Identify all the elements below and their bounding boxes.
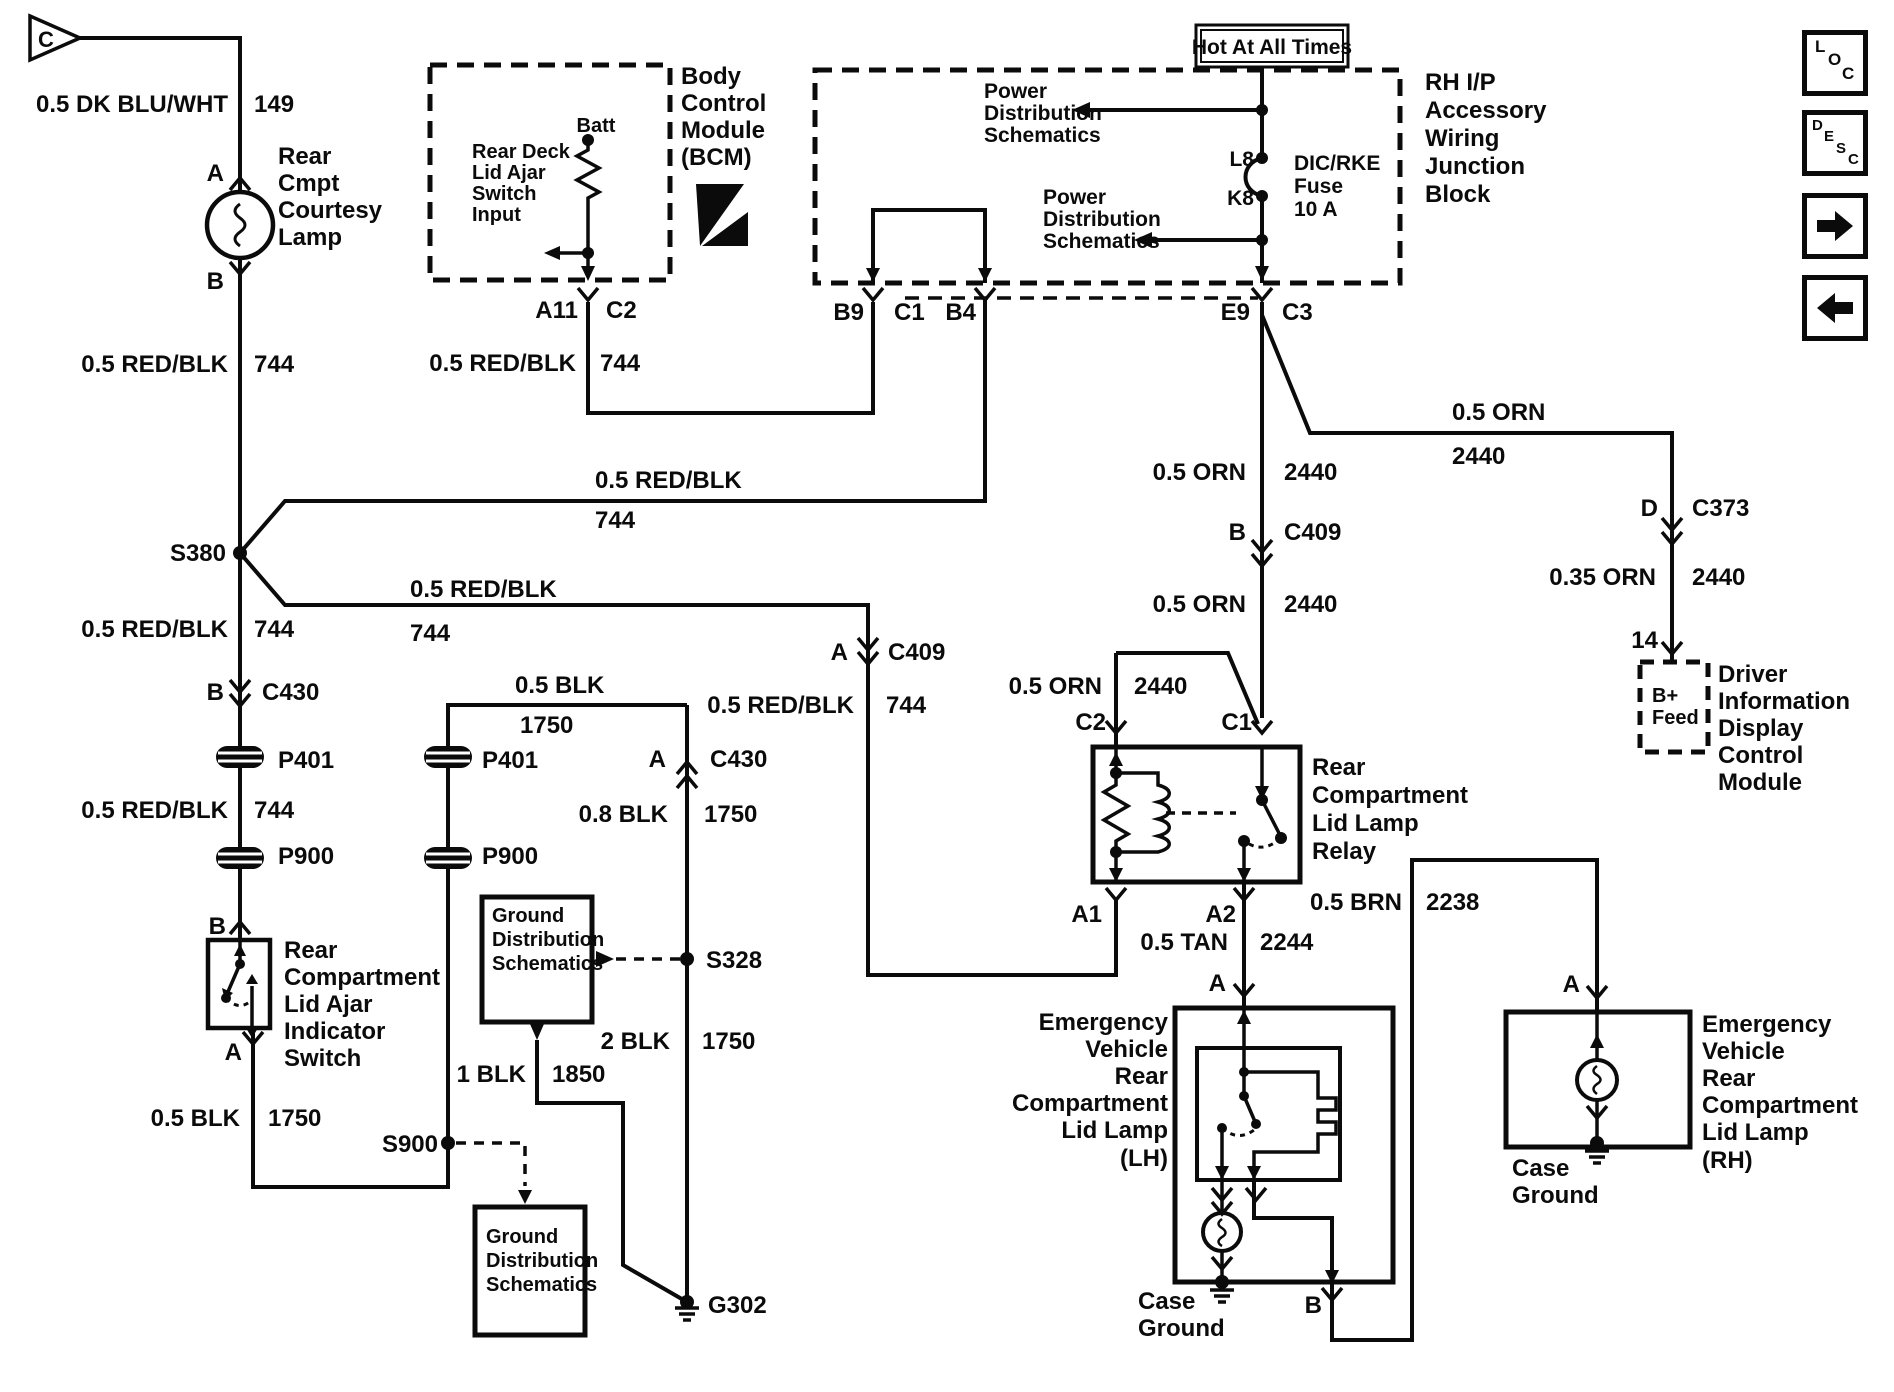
ground-label: Case bbox=[1512, 1155, 1569, 1182]
component-label: Wiring bbox=[1425, 125, 1499, 152]
pin-label: L8 bbox=[1229, 148, 1254, 171]
reference-label: Ground bbox=[492, 905, 564, 927]
component-label: Compartment bbox=[1312, 782, 1468, 809]
component-label: Compartment bbox=[284, 964, 440, 991]
connector-label: C409 bbox=[888, 639, 945, 666]
component-label: Lid Ajar bbox=[472, 162, 546, 184]
component-label: Emergency bbox=[1702, 1011, 1832, 1038]
wire-label: 1750 bbox=[520, 712, 573, 739]
component-label: Compartment bbox=[1012, 1090, 1168, 1117]
button-letter: D bbox=[1812, 117, 1823, 134]
connector-label: C3 bbox=[1282, 299, 1313, 326]
pin-label: K8 bbox=[1227, 187, 1254, 210]
wire-label: 0.5 BRN bbox=[1310, 889, 1402, 916]
wire-label: 0.5 ORN bbox=[1153, 459, 1246, 486]
wire-label: 1 BLK bbox=[457, 1061, 527, 1088]
reference-label: Distribution bbox=[486, 1250, 598, 1272]
component-label: Lamp bbox=[278, 224, 342, 251]
wire-label: 0.5 RED/BLK bbox=[81, 351, 228, 378]
component-label: Rear bbox=[284, 937, 337, 964]
reference-label: Schematics bbox=[492, 953, 603, 975]
pin-label: B bbox=[1305, 1292, 1322, 1319]
wire-label: 0.5 ORN bbox=[1009, 673, 1102, 700]
ground-label: G302 bbox=[708, 1292, 767, 1319]
wire-label: 1750 bbox=[268, 1105, 321, 1132]
reference-label: Ground bbox=[486, 1226, 558, 1248]
wire-label: 0.5 RED/BLK bbox=[81, 797, 228, 824]
wire-label: 2440 bbox=[1284, 591, 1337, 618]
component-label: (BCM) bbox=[681, 144, 752, 171]
splice-s380 bbox=[233, 546, 247, 560]
connector-label: C1 bbox=[894, 299, 925, 326]
wire-label: 2244 bbox=[1260, 929, 1314, 956]
component-label: RH I/P bbox=[1425, 69, 1496, 96]
component-label: Control bbox=[681, 90, 766, 117]
component-label: Compartment bbox=[1702, 1092, 1858, 1119]
component-label: Module bbox=[1718, 769, 1802, 796]
wire-label: 0.5 BLK bbox=[515, 672, 605, 699]
connector-label: C409 bbox=[1284, 519, 1341, 546]
component-label: Input bbox=[472, 204, 521, 226]
component-label: Cmpt bbox=[278, 170, 339, 197]
pin-label: C2 bbox=[1075, 709, 1106, 736]
component-label: Junction bbox=[1425, 153, 1525, 180]
wire-label: 0.5 ORN bbox=[1153, 591, 1246, 618]
connector-label: C430 bbox=[710, 746, 767, 773]
pin-label: E9 bbox=[1221, 299, 1250, 326]
component-label: Display bbox=[1718, 715, 1804, 742]
connector-label: C430 bbox=[262, 679, 319, 706]
component-label: Courtesy bbox=[278, 197, 383, 224]
wire-label: 744 bbox=[410, 620, 451, 647]
button-letter: E bbox=[1824, 128, 1834, 145]
fuse-label: Fuse bbox=[1294, 175, 1343, 198]
component-label: Module bbox=[681, 117, 765, 144]
pin-label: C1 bbox=[1221, 709, 1252, 736]
wire-label: 2440 bbox=[1452, 443, 1505, 470]
pin-label: A bbox=[831, 639, 848, 666]
wiring-diagram-canvas: C0.5 DK BLU/WHT149ARearCmptCourtesyLampB… bbox=[0, 0, 1894, 1392]
pin-label: B4 bbox=[945, 299, 976, 326]
component-label: Emergency bbox=[1039, 1009, 1169, 1036]
component-label: Lid Lamp bbox=[1061, 1117, 1168, 1144]
component-label: Control bbox=[1718, 742, 1803, 769]
reference-label: Schematics bbox=[1043, 230, 1160, 253]
fuse-label: DIC/RKE bbox=[1294, 152, 1380, 175]
wire-label: 744 bbox=[595, 507, 636, 534]
component-label: Rear Deck bbox=[472, 141, 571, 163]
reference-label: Power bbox=[984, 80, 1047, 103]
reference-label: Power bbox=[1043, 186, 1106, 209]
component-label: Lid Lamp bbox=[1702, 1119, 1809, 1146]
pin-function-label: B+ bbox=[1652, 685, 1678, 707]
wire-label: 149 bbox=[254, 91, 294, 118]
wire-label: 0.5 RED/BLK bbox=[595, 467, 742, 494]
forward-button[interactable] bbox=[1802, 193, 1868, 259]
wire-label: 0.5 DK BLU/WHT bbox=[36, 91, 228, 118]
wire-label: 0.8 BLK bbox=[579, 801, 669, 828]
pin-label: Batt bbox=[577, 115, 616, 137]
component-label: Lid Lamp bbox=[1312, 810, 1419, 837]
reference-label: Distribution bbox=[1043, 208, 1161, 231]
component-label: Driver bbox=[1718, 661, 1787, 688]
pin-label: A11 bbox=[535, 297, 578, 324]
wire-label: 0.35 ORN bbox=[1549, 564, 1656, 591]
wire-label: 2238 bbox=[1426, 889, 1479, 916]
component-label: (RH) bbox=[1702, 1147, 1753, 1174]
component-label: Vehicle bbox=[1085, 1036, 1168, 1063]
reference-label: Schematics bbox=[486, 1274, 597, 1296]
pin-label: B bbox=[207, 679, 224, 706]
component-label: Switch bbox=[284, 1045, 361, 1072]
pin-label: B9 bbox=[833, 299, 864, 326]
loc-button[interactable]: LOC bbox=[1802, 30, 1868, 96]
splice-label: S328 bbox=[706, 947, 762, 974]
pin-label: A bbox=[207, 160, 224, 187]
wiring-schematic-page: C0.5 DK BLU/WHT149ARearCmptCourtesyLampB… bbox=[0, 0, 1894, 1392]
reference-label: Distribution bbox=[492, 929, 604, 951]
wire-label: 1750 bbox=[702, 1028, 755, 1055]
component-label: Block bbox=[1425, 181, 1491, 208]
ground-label: Ground bbox=[1138, 1315, 1225, 1342]
back-button[interactable] bbox=[1802, 275, 1868, 341]
arrow-left-icon bbox=[1807, 280, 1863, 336]
wire-label: 0.5 RED/BLK bbox=[429, 350, 576, 377]
wire-label: 1850 bbox=[552, 1061, 605, 1088]
pin-label: A2 bbox=[1205, 901, 1236, 928]
component-label: Rear bbox=[1702, 1065, 1755, 1092]
button-letter: C bbox=[1842, 64, 1854, 84]
connector-c-label: C bbox=[38, 27, 54, 52]
pin-label: A bbox=[1563, 971, 1580, 998]
wire-label: 744 bbox=[254, 616, 295, 643]
button-letter: S bbox=[1836, 140, 1846, 157]
component-label: Vehicle bbox=[1702, 1038, 1785, 1065]
pin-label: B bbox=[209, 913, 226, 940]
arrow-right-icon bbox=[1807, 198, 1863, 254]
fuse-label: 10 A bbox=[1294, 198, 1338, 221]
ground-label: Ground bbox=[1512, 1182, 1599, 1209]
power-note: Hot At All Times bbox=[1192, 36, 1352, 59]
wire-label: 2440 bbox=[1692, 564, 1745, 591]
bcm-box bbox=[430, 65, 670, 280]
connector-label: C2 bbox=[606, 297, 637, 324]
wire-label: 2 BLK bbox=[601, 1028, 671, 1055]
pin-label: D bbox=[1641, 495, 1658, 522]
wire-label: 0.5 BLK bbox=[151, 1105, 241, 1132]
reference-label: Distribution bbox=[984, 102, 1102, 125]
component-label: Rear bbox=[1312, 754, 1365, 781]
connector-label: P401 bbox=[482, 747, 538, 774]
component-label: Rear bbox=[278, 143, 331, 170]
button-letter: O bbox=[1828, 50, 1841, 70]
pin-label: A bbox=[649, 746, 666, 773]
wire-label: 0.5 RED/BLK bbox=[410, 576, 557, 603]
component-label: Accessory bbox=[1425, 97, 1547, 124]
pin-label: B bbox=[207, 268, 224, 295]
splice-s328 bbox=[680, 952, 694, 966]
wire-label: 0.5 RED/BLK bbox=[707, 692, 854, 719]
wire-label: 744 bbox=[254, 351, 295, 378]
pin-function-label: Feed bbox=[1652, 707, 1699, 729]
splice-s900 bbox=[441, 1136, 455, 1150]
connector-label: P401 bbox=[278, 747, 334, 774]
splice-label: S900 bbox=[382, 1131, 438, 1158]
component-label: (LH) bbox=[1120, 1145, 1168, 1172]
connector-label: P900 bbox=[278, 843, 334, 870]
wire-label: 2440 bbox=[1284, 459, 1337, 486]
wire-label: 0.5 ORN bbox=[1452, 399, 1545, 426]
pin-label: A bbox=[1209, 970, 1226, 997]
connector-label: P900 bbox=[482, 843, 538, 870]
connector-label: C373 bbox=[1692, 495, 1749, 522]
component-label: Rear bbox=[1115, 1063, 1168, 1090]
wire-label: 2440 bbox=[1134, 673, 1187, 700]
component-label: Relay bbox=[1312, 838, 1377, 865]
reference-label: Schematics bbox=[984, 124, 1101, 147]
pin-label: 14 bbox=[1631, 627, 1658, 654]
button-letter: C bbox=[1848, 151, 1859, 168]
wire-label: 744 bbox=[254, 797, 295, 824]
component-label: Lid Ajar bbox=[284, 991, 372, 1018]
component-label: Body bbox=[681, 63, 742, 90]
pin-label: A bbox=[225, 1039, 242, 1066]
wire-label: 0.5 RED/BLK bbox=[81, 616, 228, 643]
wire-label: 0.5 TAN bbox=[1140, 929, 1228, 956]
pin-label: A1 bbox=[1071, 901, 1102, 928]
wire-label: 1750 bbox=[704, 801, 757, 828]
splice-label: S380 bbox=[170, 540, 226, 567]
button-letter: L bbox=[1815, 37, 1825, 57]
ground-label: Case bbox=[1138, 1288, 1195, 1315]
component-label: Indicator bbox=[284, 1018, 385, 1045]
wire-label: 744 bbox=[600, 350, 641, 377]
pin-label: B bbox=[1229, 519, 1246, 546]
component-label: Information bbox=[1718, 688, 1850, 715]
wire-label: 744 bbox=[886, 692, 927, 719]
component-label: Switch bbox=[472, 183, 536, 205]
desc-button[interactable]: DESC bbox=[1802, 110, 1868, 176]
